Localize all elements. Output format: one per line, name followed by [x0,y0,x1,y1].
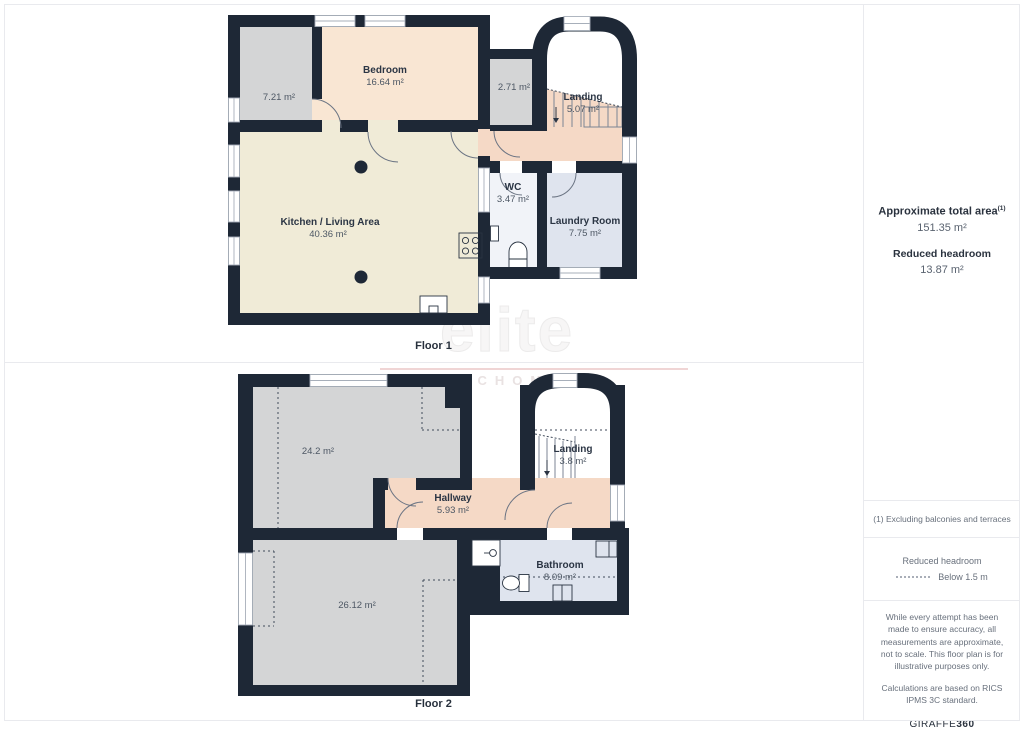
footnote: (1) Excluding balconies and terraces [864,500,1020,537]
footnote-marker: (1) [998,205,1006,212]
giraffe360-logo: GIRAFFE360 [874,718,1010,733]
bedroom-area: 16.64 m² [366,77,404,88]
bedroom-name: Bedroom [363,65,407,76]
floor2-title: Floor 2 [4,698,863,710]
floor1-plan: Bedroom 16.64 m² 7.21 m² 2.71 m² Landing… [4,4,863,362]
legend-row: Below 1.5 m [896,572,988,582]
floor1-title: Floor 1 [4,340,863,352]
toilet-icon [509,242,527,267]
column-dot [355,271,368,284]
summary-sidebar: Approximate total area(1) 151.35 m² Redu… [864,4,1020,720]
column-dot [355,161,368,174]
wc-name: WC [505,182,522,193]
landing-area: 3.8 m² [560,456,587,467]
side-room-area: 7.21 m² [263,92,295,103]
landing-name: Landing [564,92,603,103]
total-area-title: Approximate total area(1) [864,205,1020,218]
headroom-legend: Reduced headroom Below 1.5 m [864,537,1020,600]
wc-area: 3.47 m² [497,194,529,205]
reduced-headroom-title: Reduced headroom [864,248,1020,260]
room-a-area: 24.2 m² [302,446,334,457]
total-area-value: 151.35 m² [864,222,1020,234]
disclaimer-section: While every attempt has been made to ens… [864,600,1020,720]
hallway-area: 5.93 m² [437,505,469,516]
landing-area: 5.07 m² [567,104,599,115]
wc-basin-icon [491,226,499,241]
kitchen-name: Kitchen / Living Area [280,217,380,228]
laundry-name: Laundry Room [550,216,621,227]
total-area-section: Approximate total area(1) 151.35 m² Redu… [864,4,1020,500]
shower-icon [472,540,500,566]
kitchen-area: 40.36 m² [309,229,347,240]
floor2-plan: 24.2 m² Landing 3.8 m² Hallway 5.93 m² 2… [4,362,863,720]
disclaimer-text: While every attempt has been made to ens… [874,611,1010,673]
standard-note: Calculations are based on RICS IPMS 3C s… [874,682,1010,707]
reduced-headroom-value: 13.87 m² [864,264,1020,276]
sidebar-divider [863,4,864,720]
room-b-area: 26.12 m² [338,600,376,611]
dotted-line-sample [896,576,930,578]
small-room-area: 2.71 m² [498,82,530,93]
hallway-name: Hallway [434,493,472,504]
bathroom-name: Bathroom [536,560,583,571]
legend-title: Reduced headroom [902,556,981,566]
floors-divider [4,362,863,363]
landing-name: Landing [554,444,593,455]
laundry-area: 7.75 m² [569,228,601,239]
toilet-icon [503,575,530,592]
sink-icon [420,296,447,313]
bathroom-area: 8.09 m² [544,572,576,583]
